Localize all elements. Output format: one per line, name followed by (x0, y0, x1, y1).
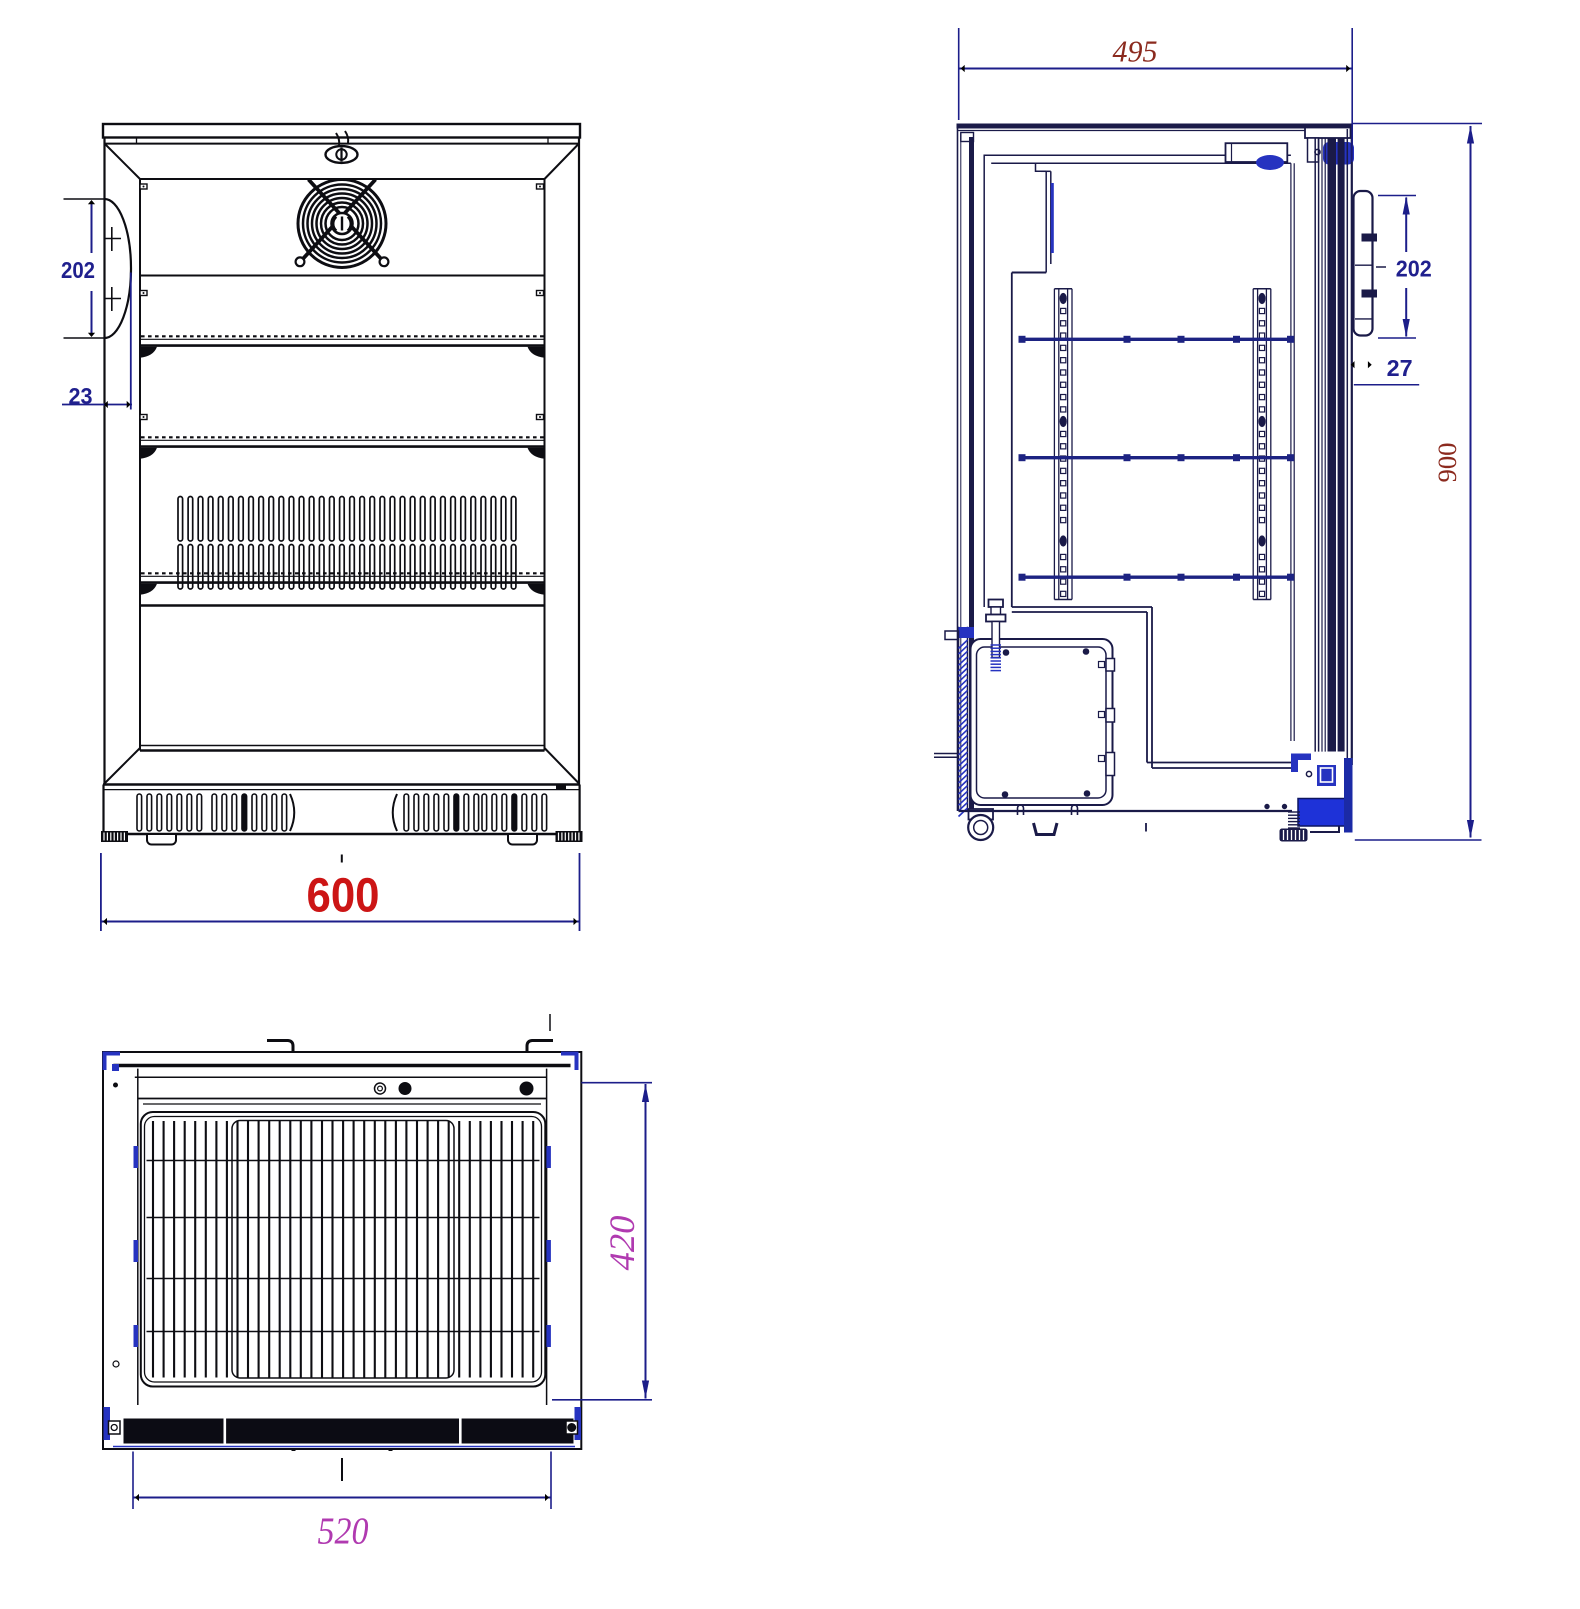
svg-text:27: 27 (1387, 355, 1413, 381)
svg-text:495: 495 (1113, 34, 1158, 69)
svg-text:202: 202 (1396, 256, 1432, 282)
svg-text:520: 520 (318, 1511, 369, 1553)
svg-text:202: 202 (61, 257, 95, 283)
svg-text:420: 420 (602, 1216, 642, 1271)
svg-text:900: 900 (1433, 443, 1462, 483)
svg-text:23: 23 (69, 383, 93, 409)
svg-text:600: 600 (307, 870, 380, 923)
